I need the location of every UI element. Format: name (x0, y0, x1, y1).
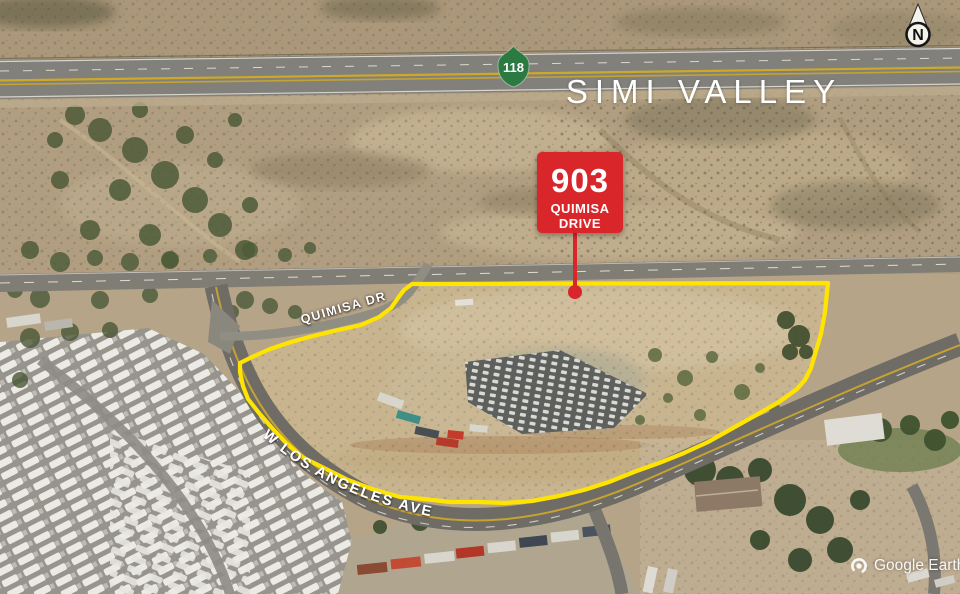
watermark-text: Google Earth (874, 557, 960, 575)
property-callout: 903 QUIMISA DRIVE (537, 152, 623, 233)
north-arrow-label: N (912, 27, 924, 44)
callout-leader-dot (568, 285, 582, 299)
region-label: SIMI VALLEY (558, 73, 850, 111)
callout-address-number: 903 (537, 164, 623, 197)
google-earth-watermark: Google Earth (849, 556, 960, 576)
highway-shield-route: 118 (503, 60, 524, 75)
aerial-map: W LOS ANGELES AVE 118 SIMI VALLEY 903 QU… (0, 0, 960, 594)
callout-leader-line (573, 233, 577, 288)
google-earth-logo-icon (849, 556, 869, 576)
north-arrow: N (899, 3, 937, 53)
callout-street-line2: DRIVE (537, 216, 623, 231)
callout-street-line1: QUIMISA (537, 201, 623, 216)
